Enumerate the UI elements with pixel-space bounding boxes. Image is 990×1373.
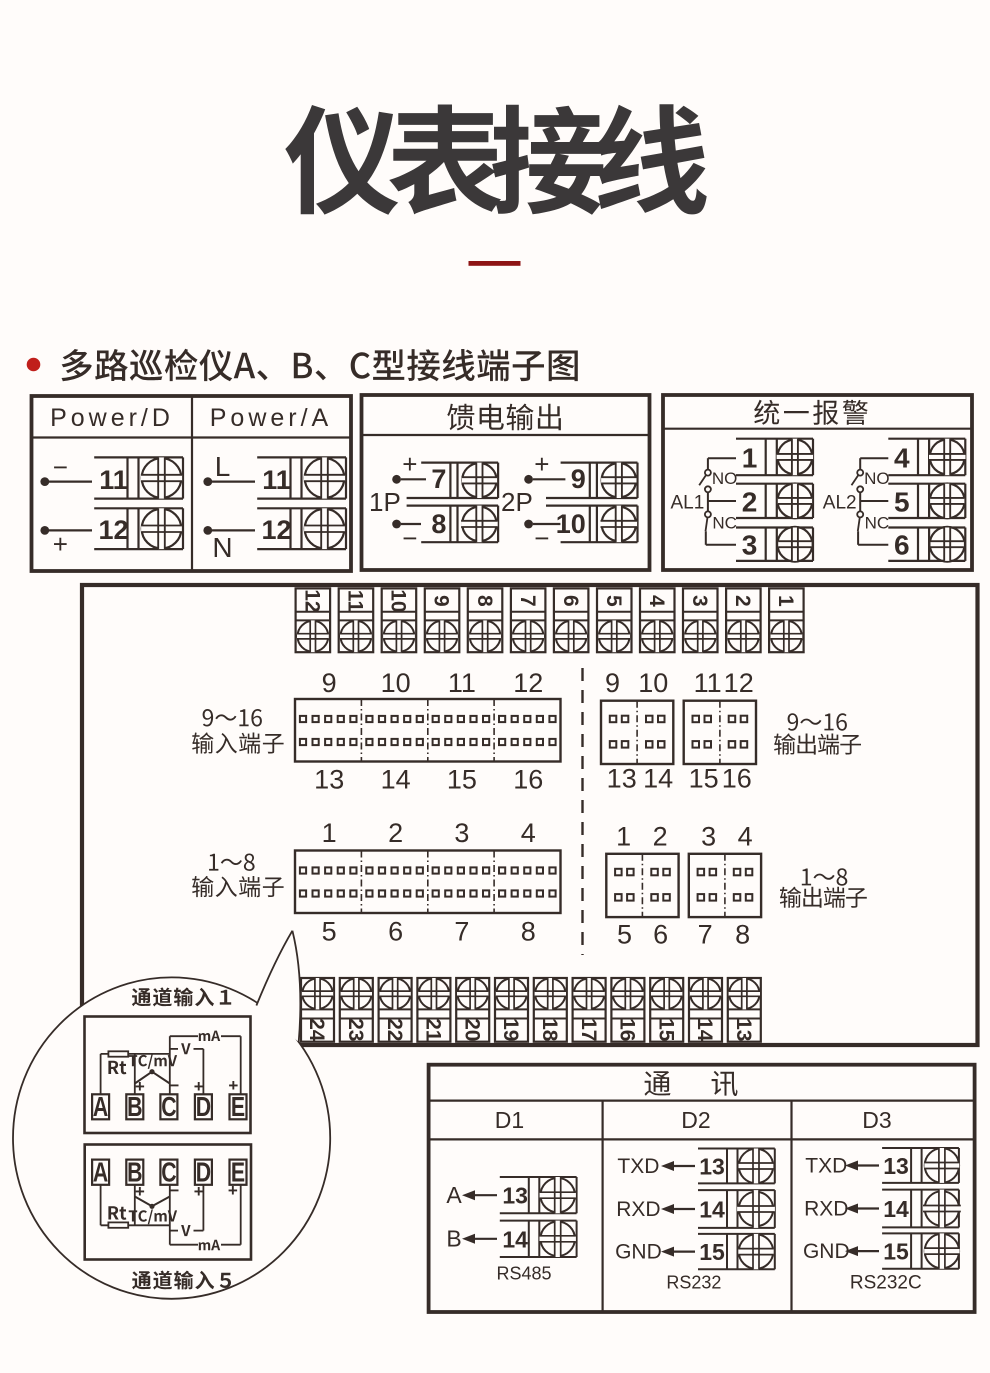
svg-text:TXD: TXD	[617, 1155, 659, 1178]
svg-text:D3: D3	[862, 1107, 891, 1133]
svg-text:+: +	[194, 1182, 204, 1201]
svg-text:15: 15	[883, 1239, 909, 1265]
svg-text:A: A	[93, 1091, 108, 1123]
svg-text:15: 15	[654, 1018, 677, 1042]
svg-text:6: 6	[894, 530, 910, 561]
svg-text:A: A	[446, 1182, 462, 1208]
svg-text:20: 20	[460, 1018, 483, 1041]
svg-text:6: 6	[559, 595, 582, 607]
svg-text:3: 3	[701, 821, 716, 851]
svg-text:14: 14	[381, 765, 411, 795]
svg-text:11: 11	[262, 465, 291, 495]
svg-text:8: 8	[473, 595, 496, 607]
svg-text:13: 13	[502, 1183, 528, 1209]
svg-text:+: +	[135, 1182, 145, 1201]
svg-text:8: 8	[521, 917, 536, 947]
svg-text:2: 2	[388, 818, 403, 848]
svg-text:1: 1	[616, 821, 631, 851]
svg-text:13: 13	[607, 764, 637, 794]
svg-text:TXD: TXD	[805, 1155, 847, 1178]
svg-text:−: −	[169, 1181, 179, 1200]
svg-text:2: 2	[742, 486, 758, 517]
svg-text:RS232: RS232	[666, 1273, 721, 1293]
svg-text:3: 3	[742, 530, 758, 561]
svg-text:2: 2	[653, 821, 668, 851]
svg-text:RS232C: RS232C	[850, 1273, 922, 1294]
svg-text:NC: NC	[865, 514, 890, 533]
svg-text:5: 5	[602, 595, 625, 607]
svg-text:2: 2	[731, 595, 754, 607]
svg-text:−: −	[53, 452, 68, 482]
svg-text:D1: D1	[495, 1107, 524, 1133]
svg-text:E: E	[231, 1091, 245, 1123]
svg-text:12: 12	[261, 515, 291, 545]
svg-text:1: 1	[322, 818, 337, 848]
svg-text:+: +	[228, 1076, 238, 1095]
svg-text:10: 10	[638, 668, 668, 698]
svg-text:11: 11	[99, 465, 128, 495]
svg-text:11: 11	[448, 668, 476, 698]
svg-text:3: 3	[454, 818, 469, 848]
svg-text:1P: 1P	[369, 487, 401, 517]
svg-text:GND: GND	[615, 1241, 662, 1264]
svg-text:RS485: RS485	[496, 1264, 551, 1284]
svg-text:14: 14	[693, 1018, 716, 1042]
svg-text:Power/A: Power/A	[210, 404, 332, 432]
svg-text:15: 15	[689, 764, 719, 794]
svg-text:15: 15	[447, 765, 477, 795]
svg-text:4: 4	[521, 818, 536, 848]
svg-text:8: 8	[735, 919, 750, 949]
svg-text:Power/D: Power/D	[50, 404, 174, 432]
svg-text:12: 12	[301, 589, 324, 612]
svg-text:16: 16	[722, 764, 752, 794]
svg-text:11: 11	[694, 668, 722, 698]
svg-text:16: 16	[616, 1018, 639, 1041]
svg-text:−: −	[169, 1076, 179, 1095]
svg-text:8: 8	[431, 509, 446, 539]
svg-text:9: 9	[571, 464, 586, 494]
svg-text:+: +	[53, 529, 68, 559]
svg-text:7: 7	[454, 917, 469, 947]
svg-text:+: +	[228, 1181, 238, 1200]
svg-text:13: 13	[314, 765, 344, 795]
svg-text:N: N	[212, 532, 232, 563]
svg-text:7: 7	[698, 919, 713, 949]
svg-text:NO: NO	[712, 469, 738, 488]
svg-text:5: 5	[322, 917, 337, 947]
svg-text:14: 14	[699, 1197, 725, 1223]
svg-text:9: 9	[322, 668, 337, 698]
svg-text:3: 3	[688, 595, 711, 607]
svg-text:13: 13	[699, 1154, 725, 1180]
svg-text:4: 4	[894, 442, 910, 473]
svg-text:AL1: AL1	[670, 493, 704, 514]
svg-text:L: L	[215, 451, 231, 482]
svg-text:13: 13	[732, 1018, 755, 1041]
svg-text:12: 12	[724, 668, 754, 698]
svg-text:24: 24	[305, 1018, 328, 1042]
svg-text:5: 5	[617, 919, 632, 949]
svg-text:10: 10	[556, 509, 586, 539]
svg-text:7: 7	[431, 464, 446, 494]
svg-text:14: 14	[643, 764, 673, 794]
svg-text:−: −	[402, 523, 417, 553]
svg-text:14: 14	[883, 1196, 909, 1222]
svg-text:18: 18	[538, 1018, 561, 1042]
svg-text:23: 23	[344, 1018, 367, 1041]
svg-text:6: 6	[388, 917, 403, 947]
svg-text:2P: 2P	[501, 487, 533, 517]
svg-text:12: 12	[513, 668, 543, 698]
svg-text:6: 6	[653, 919, 668, 949]
svg-text:D2: D2	[681, 1107, 710, 1133]
svg-text:RXD: RXD	[804, 1198, 848, 1221]
svg-text:19: 19	[499, 1018, 522, 1041]
svg-text:1: 1	[742, 442, 758, 473]
svg-text:4: 4	[738, 821, 753, 851]
svg-text:10: 10	[381, 668, 411, 698]
svg-text:21: 21	[422, 1018, 445, 1042]
svg-text:−: −	[534, 523, 549, 553]
svg-text:A: A	[93, 1157, 108, 1189]
svg-text:C: C	[161, 1091, 176, 1123]
svg-text:9: 9	[605, 668, 620, 698]
svg-text:17: 17	[577, 1018, 600, 1041]
svg-text:NC: NC	[712, 514, 737, 533]
svg-text:1: 1	[774, 595, 797, 607]
svg-text:+: +	[534, 449, 549, 479]
svg-text:AL2: AL2	[823, 493, 857, 514]
svg-text:+: +	[135, 1077, 145, 1096]
svg-text:15: 15	[699, 1239, 725, 1265]
svg-text:+: +	[402, 449, 417, 479]
svg-text:22: 22	[383, 1018, 406, 1041]
svg-text:GND: GND	[803, 1240, 850, 1263]
svg-text:16: 16	[513, 765, 543, 795]
svg-text:+: +	[194, 1077, 204, 1096]
svg-text:5: 5	[894, 486, 910, 517]
svg-text:NO: NO	[864, 469, 890, 488]
svg-text:4: 4	[645, 595, 668, 607]
svg-text:9: 9	[430, 595, 453, 607]
svg-text:12: 12	[98, 515, 128, 545]
svg-text:14: 14	[502, 1226, 528, 1252]
svg-text:RXD: RXD	[616, 1198, 660, 1221]
svg-text:7: 7	[516, 595, 539, 607]
svg-text:13: 13	[883, 1153, 909, 1179]
svg-text:11: 11	[344, 590, 367, 613]
svg-text:10: 10	[387, 589, 410, 612]
svg-text:B: B	[446, 1226, 461, 1252]
